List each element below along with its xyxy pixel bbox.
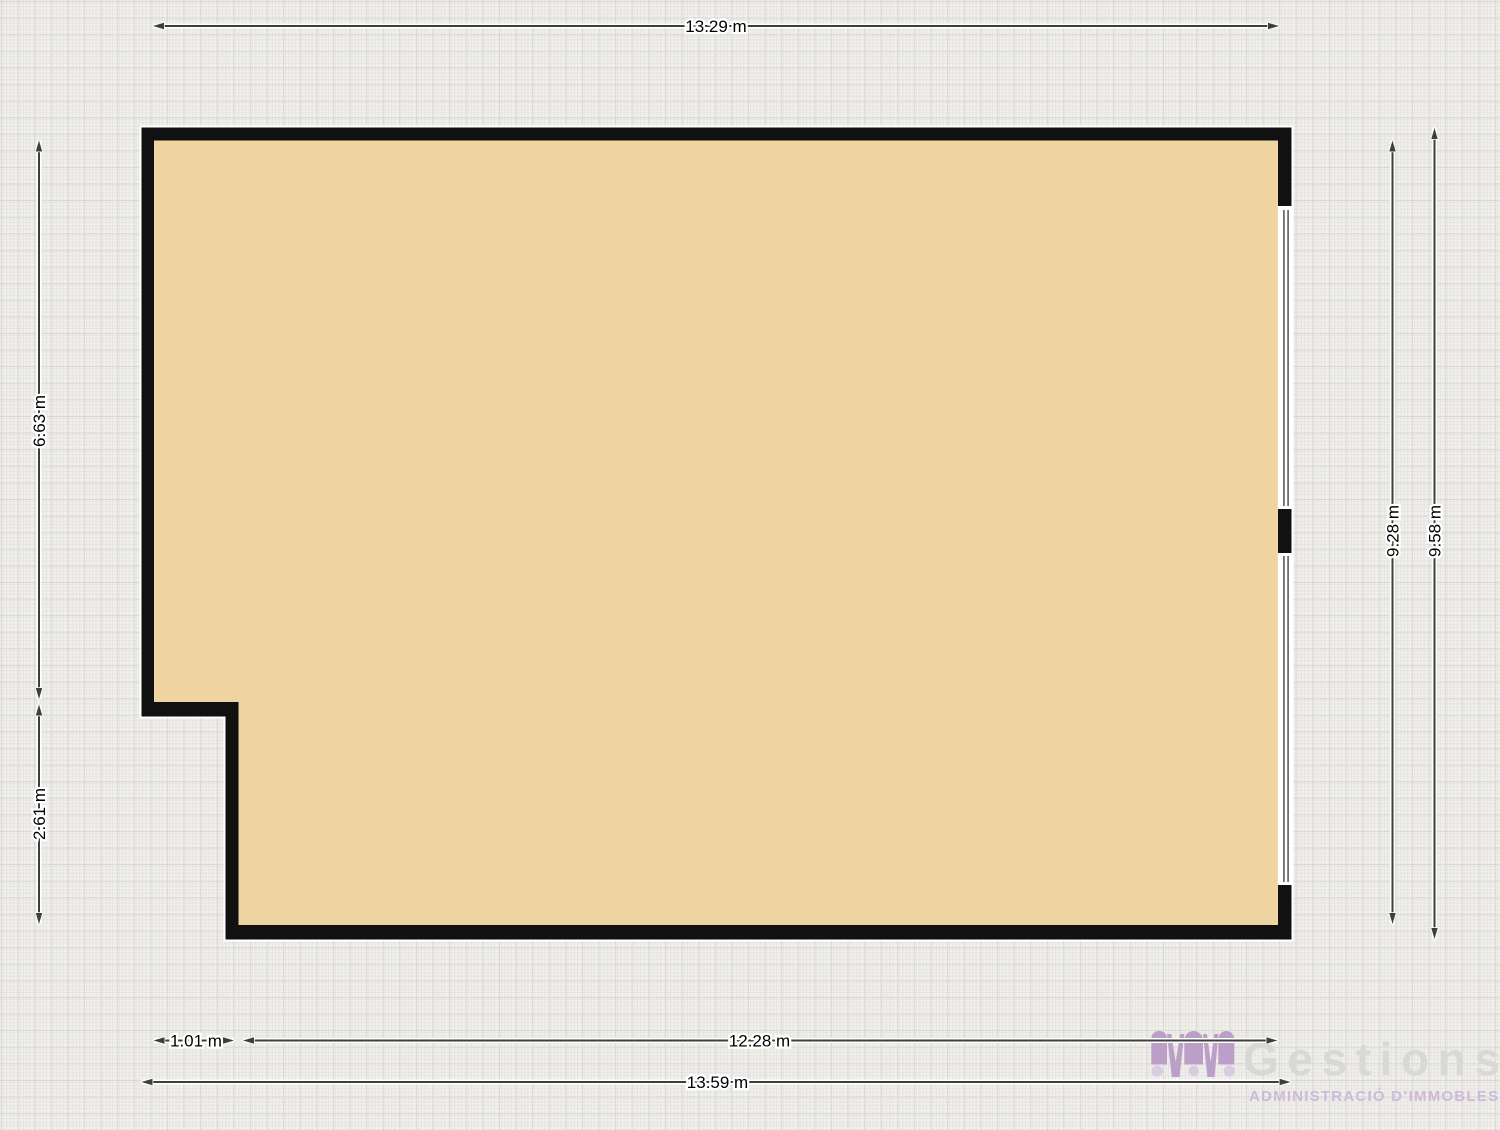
svg-text:12.28 m: 12.28 m — [729, 1032, 790, 1051]
svg-text:13.59 m: 13.59 m — [687, 1073, 748, 1092]
svg-text:13.29 m: 13.29 m — [685, 17, 746, 36]
svg-text:1.01 m: 1.01 m — [170, 1032, 222, 1051]
svg-text:9.28 m: 9.28 m — [1384, 505, 1403, 557]
svg-text:6.63 m: 6.63 m — [30, 395, 49, 447]
svg-text:2.61 m: 2.61 m — [30, 788, 49, 840]
svg-text:ADMINISTRACIÓ D’IMMOBLES: ADMINISTRACIÓ D’IMMOBLES — [1249, 1087, 1498, 1105]
svg-text:9.58 m: 9.58 m — [1426, 505, 1445, 557]
